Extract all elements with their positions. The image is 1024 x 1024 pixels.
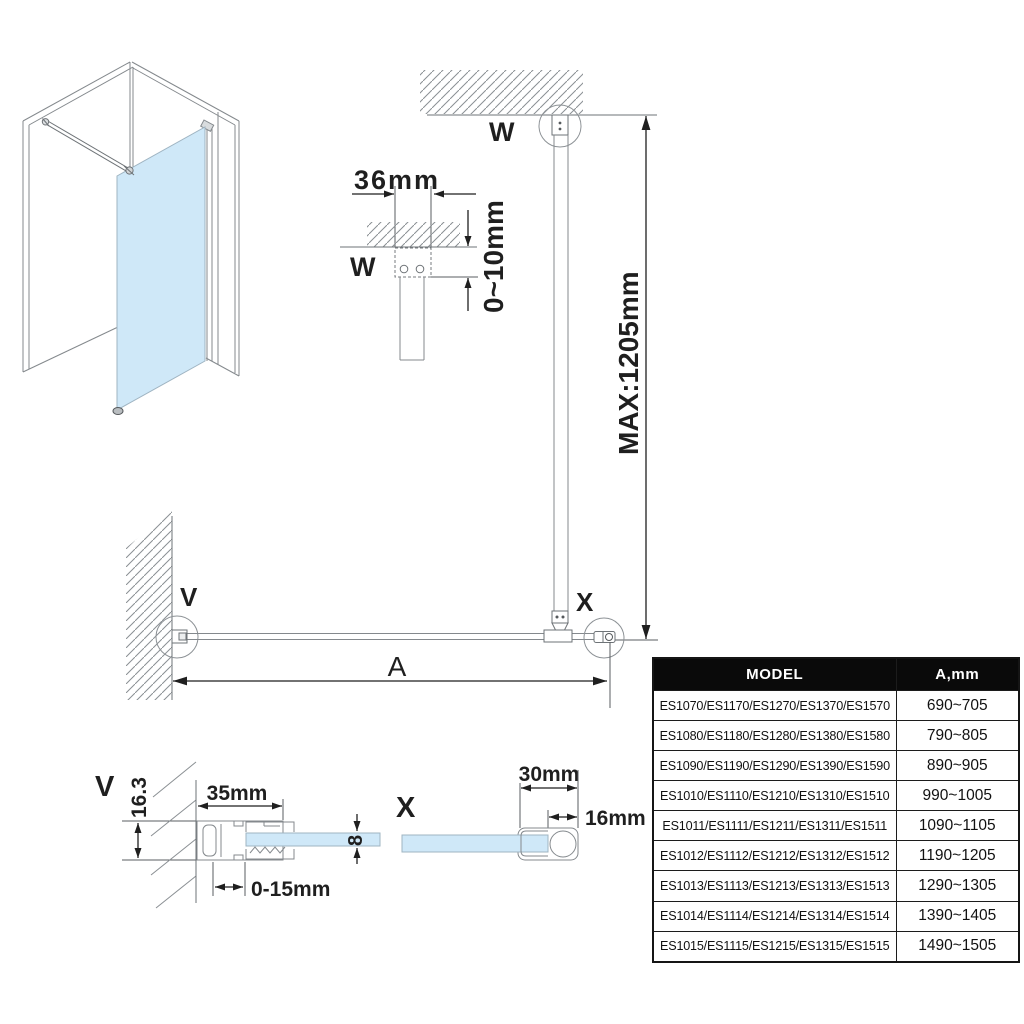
junction-block — [544, 630, 572, 642]
glass-thickness-label: 8 — [345, 835, 367, 846]
dimension-max-height: MAX:1205mm — [612, 116, 658, 640]
range-cell: 790~805 — [896, 721, 1019, 751]
support-bar — [42, 119, 134, 176]
detail-x-glass — [402, 835, 548, 852]
ceiling-hatch — [420, 70, 583, 114]
table-row: ES1090/ES1190/ES1290/ES1390/ES1590 890~9… — [653, 751, 1019, 781]
model-cell: ES1070/ES1170/ES1270/ES1370/ES1570 — [653, 691, 896, 721]
ceiling-post — [552, 135, 568, 631]
detail-v-wall-hatch — [151, 762, 196, 908]
adjustment-label: 0-15mm — [251, 878, 330, 901]
model-column-header: MODEL — [653, 658, 896, 691]
max-height-label: MAX:1205mm — [613, 271, 644, 455]
elevation-w-label: W — [489, 117, 515, 147]
range-cell: 1190~1205 — [896, 841, 1019, 871]
detail-w-view: 36mm W 0~10mm — [340, 165, 509, 360]
elevation-view: W MAX:1205mm — [420, 70, 658, 640]
table-row: ES1010/ES1110/ES1210/ES1310/ES1510 990~1… — [653, 781, 1019, 811]
detail-v-view: V 16.3 35mm — [95, 762, 380, 908]
model-cell: ES1015/ES1115/ES1215/ES1315/ES1515 — [653, 931, 896, 962]
detail-x-view: X 30mm 16mm — [396, 763, 646, 860]
table-row: ES1080/ES1180/ES1280/ES1380/ES1580 790~8… — [653, 721, 1019, 751]
a-label: A — [388, 651, 407, 682]
range-cell: 1290~1305 — [896, 871, 1019, 901]
detail-v-label: V — [95, 771, 115, 803]
table-row: ES1014/ES1114/ES1214/ES1314/ES1514 1390~… — [653, 901, 1019, 931]
range-cell: 1390~1405 — [896, 901, 1019, 931]
dimension-a: A — [173, 642, 610, 708]
plan-view: V X A — [126, 510, 624, 708]
table-row: ES1012/ES1112/ES1212/ES1312/ES1512 1190~… — [653, 841, 1019, 871]
table-row: ES1011/ES1111/ES1211/ES1311/ES1511 1090~… — [653, 811, 1019, 841]
range-cell: 1090~1105 — [896, 811, 1019, 841]
profile-height-label: 16.3 — [128, 777, 151, 818]
glass-foot — [113, 408, 123, 415]
ceiling-gap-label: 0~10mm — [478, 200, 509, 313]
model-table: MODEL A,mm ES1070/ES1170/ES1270/ES1370/E… — [652, 657, 1018, 963]
detail-w-ceiling-hatch — [367, 222, 460, 247]
table-header-row: MODEL A,mm — [653, 658, 1019, 691]
detail-w-bracket — [395, 248, 431, 277]
model-cell: ES1014/ES1114/ES1214/ES1314/ES1514 — [653, 901, 896, 931]
range-cell: 990~1005 — [896, 781, 1019, 811]
range-cell: 690~705 — [896, 691, 1019, 721]
cap-depth-label: 16mm — [585, 807, 646, 830]
plan-v-label: V — [180, 582, 198, 612]
detail-w-width-label: 36mm — [354, 165, 440, 195]
detail-w-post — [400, 277, 424, 360]
model-cell: ES1013/ES1113/ES1213/ES1313/ES1513 — [653, 871, 896, 901]
profile-width-label: 35mm — [207, 782, 268, 805]
glass-end-cap — [594, 632, 615, 643]
a-mm-column-header: A,mm — [896, 658, 1019, 691]
ceiling-bracket — [552, 115, 568, 135]
detail-x-label: X — [396, 792, 416, 824]
plan-x-label: X — [576, 587, 594, 617]
model-cell: ES1090/ES1190/ES1290/ES1390/ES1590 — [653, 751, 896, 781]
dimension-16-3 — [122, 821, 200, 860]
stabilizer-bar — [172, 630, 594, 643]
dimension-ceiling-gap: 0~10mm — [431, 200, 509, 313]
isometric-view — [23, 62, 239, 415]
detail-w-label: W — [350, 252, 376, 282]
range-cell: 890~905 — [896, 751, 1019, 781]
dimension-0-15: 0-15mm — [213, 862, 330, 901]
model-cell: ES1012/ES1112/ES1212/ES1312/ES1512 — [653, 841, 896, 871]
model-cell: ES1011/ES1111/ES1211/ES1311/ES1511 — [653, 811, 896, 841]
table-row: ES1015/ES1115/ES1215/ES1315/ES1515 1490~… — [653, 931, 1019, 962]
model-cell: ES1080/ES1180/ES1280/ES1380/ES1580 — [653, 721, 896, 751]
wall-hatch — [126, 510, 172, 700]
cap-width-label: 30mm — [519, 763, 580, 786]
table-row: ES1070/ES1170/ES1270/ES1370/ES1570 690~7… — [653, 691, 1019, 721]
dimension-glass-8: 8 — [345, 814, 367, 864]
model-cell: ES1010/ES1110/ES1210/ES1310/ES1510 — [653, 781, 896, 811]
table-row: ES1013/ES1113/ES1213/ES1313/ES1513 1290~… — [653, 871, 1019, 901]
dimension-16mm: 16mm — [548, 807, 646, 830]
range-cell: 1490~1505 — [896, 931, 1019, 962]
